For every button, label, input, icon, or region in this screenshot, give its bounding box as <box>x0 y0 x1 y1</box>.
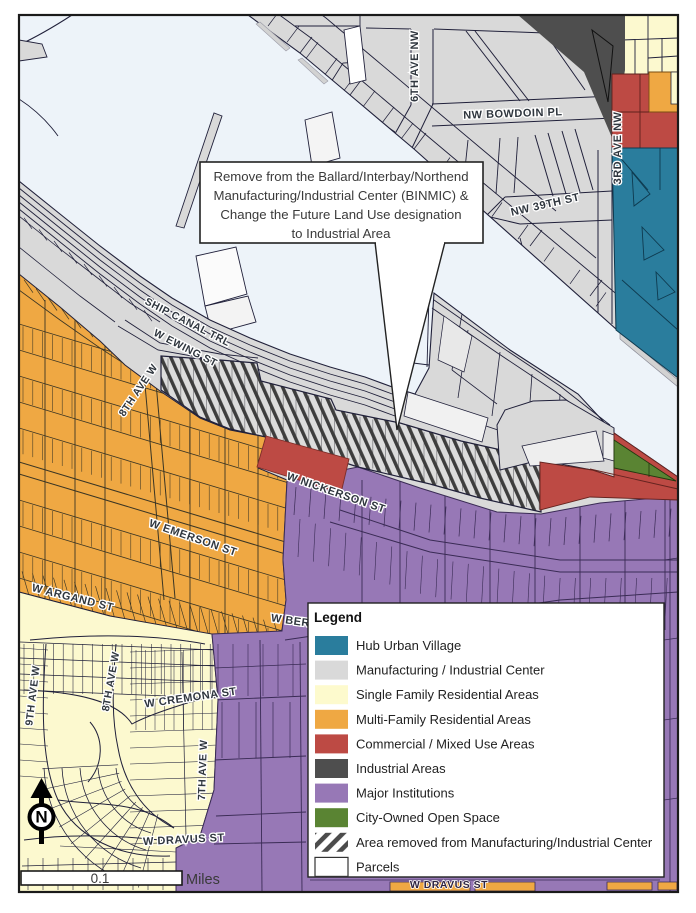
svg-text:Remove from the Ballard/Interb: Remove from the Ballard/Interbay/Northen… <box>213 169 468 184</box>
svg-text:Single Family Residential Area: Single Family Residential Areas <box>356 687 539 702</box>
svg-text:Major Institutions: Major Institutions <box>356 786 455 801</box>
svg-text:City-Owned Open Space: City-Owned Open Space <box>356 810 500 825</box>
svg-text:Manufacturing / Industrial Cen: Manufacturing / Industrial Center <box>356 663 545 678</box>
svg-text:Legend: Legend <box>314 610 362 625</box>
svg-text:Miles: Miles <box>186 872 220 888</box>
svg-text:Multi-Family Residential Areas: Multi-Family Residential Areas <box>356 712 531 727</box>
svg-text:Commercial / Mixed Use Areas: Commercial / Mixed Use Areas <box>356 736 535 751</box>
svg-text:Parcels: Parcels <box>356 859 400 874</box>
svg-text:N: N <box>35 808 47 827</box>
svg-text:to Industrial Area: to Industrial Area <box>292 226 392 241</box>
svg-text:Change the Future Land Use des: Change the Future Land Use designation <box>220 207 461 222</box>
svg-text:7TH AVE W: 7TH AVE W <box>196 739 210 800</box>
svg-text:Manufacturing/Industrial Cente: Manufacturing/Industrial Center (BINMIC)… <box>213 188 468 203</box>
svg-text:Industrial Areas: Industrial Areas <box>356 761 446 776</box>
svg-text:0.1: 0.1 <box>91 871 110 886</box>
svg-text:W DRAVUS ST: W DRAVUS ST <box>410 879 488 891</box>
svg-text:Hub Urban Village: Hub Urban Village <box>356 638 461 653</box>
svg-text:3RD AVE NW: 3RD AVE NW <box>612 111 624 184</box>
svg-text:6TH AVE NW: 6TH AVE NW <box>409 30 421 102</box>
svg-text:Area removed from Manufacturin: Area removed from Manufacturing/Industri… <box>356 835 653 850</box>
